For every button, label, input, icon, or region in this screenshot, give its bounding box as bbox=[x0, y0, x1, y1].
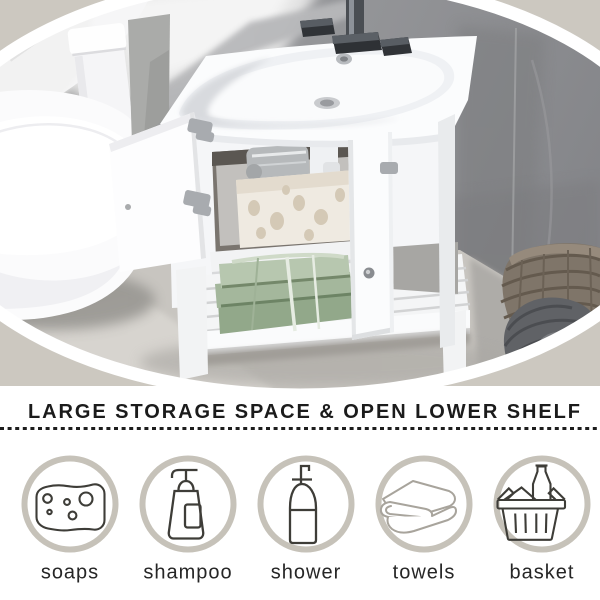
svg-text:shower: shower bbox=[271, 562, 341, 584]
svg-text:LARGE STORAGE SPACE & OPEN LOW: LARGE STORAGE SPACE & OPEN LOWER SHELF bbox=[28, 401, 580, 423]
svg-text:soaps: soaps bbox=[41, 562, 99, 584]
svg-text:basket: basket bbox=[510, 562, 575, 584]
svg-text:shampoo: shampoo bbox=[143, 562, 232, 584]
svg-text:towels: towels bbox=[393, 562, 456, 584]
